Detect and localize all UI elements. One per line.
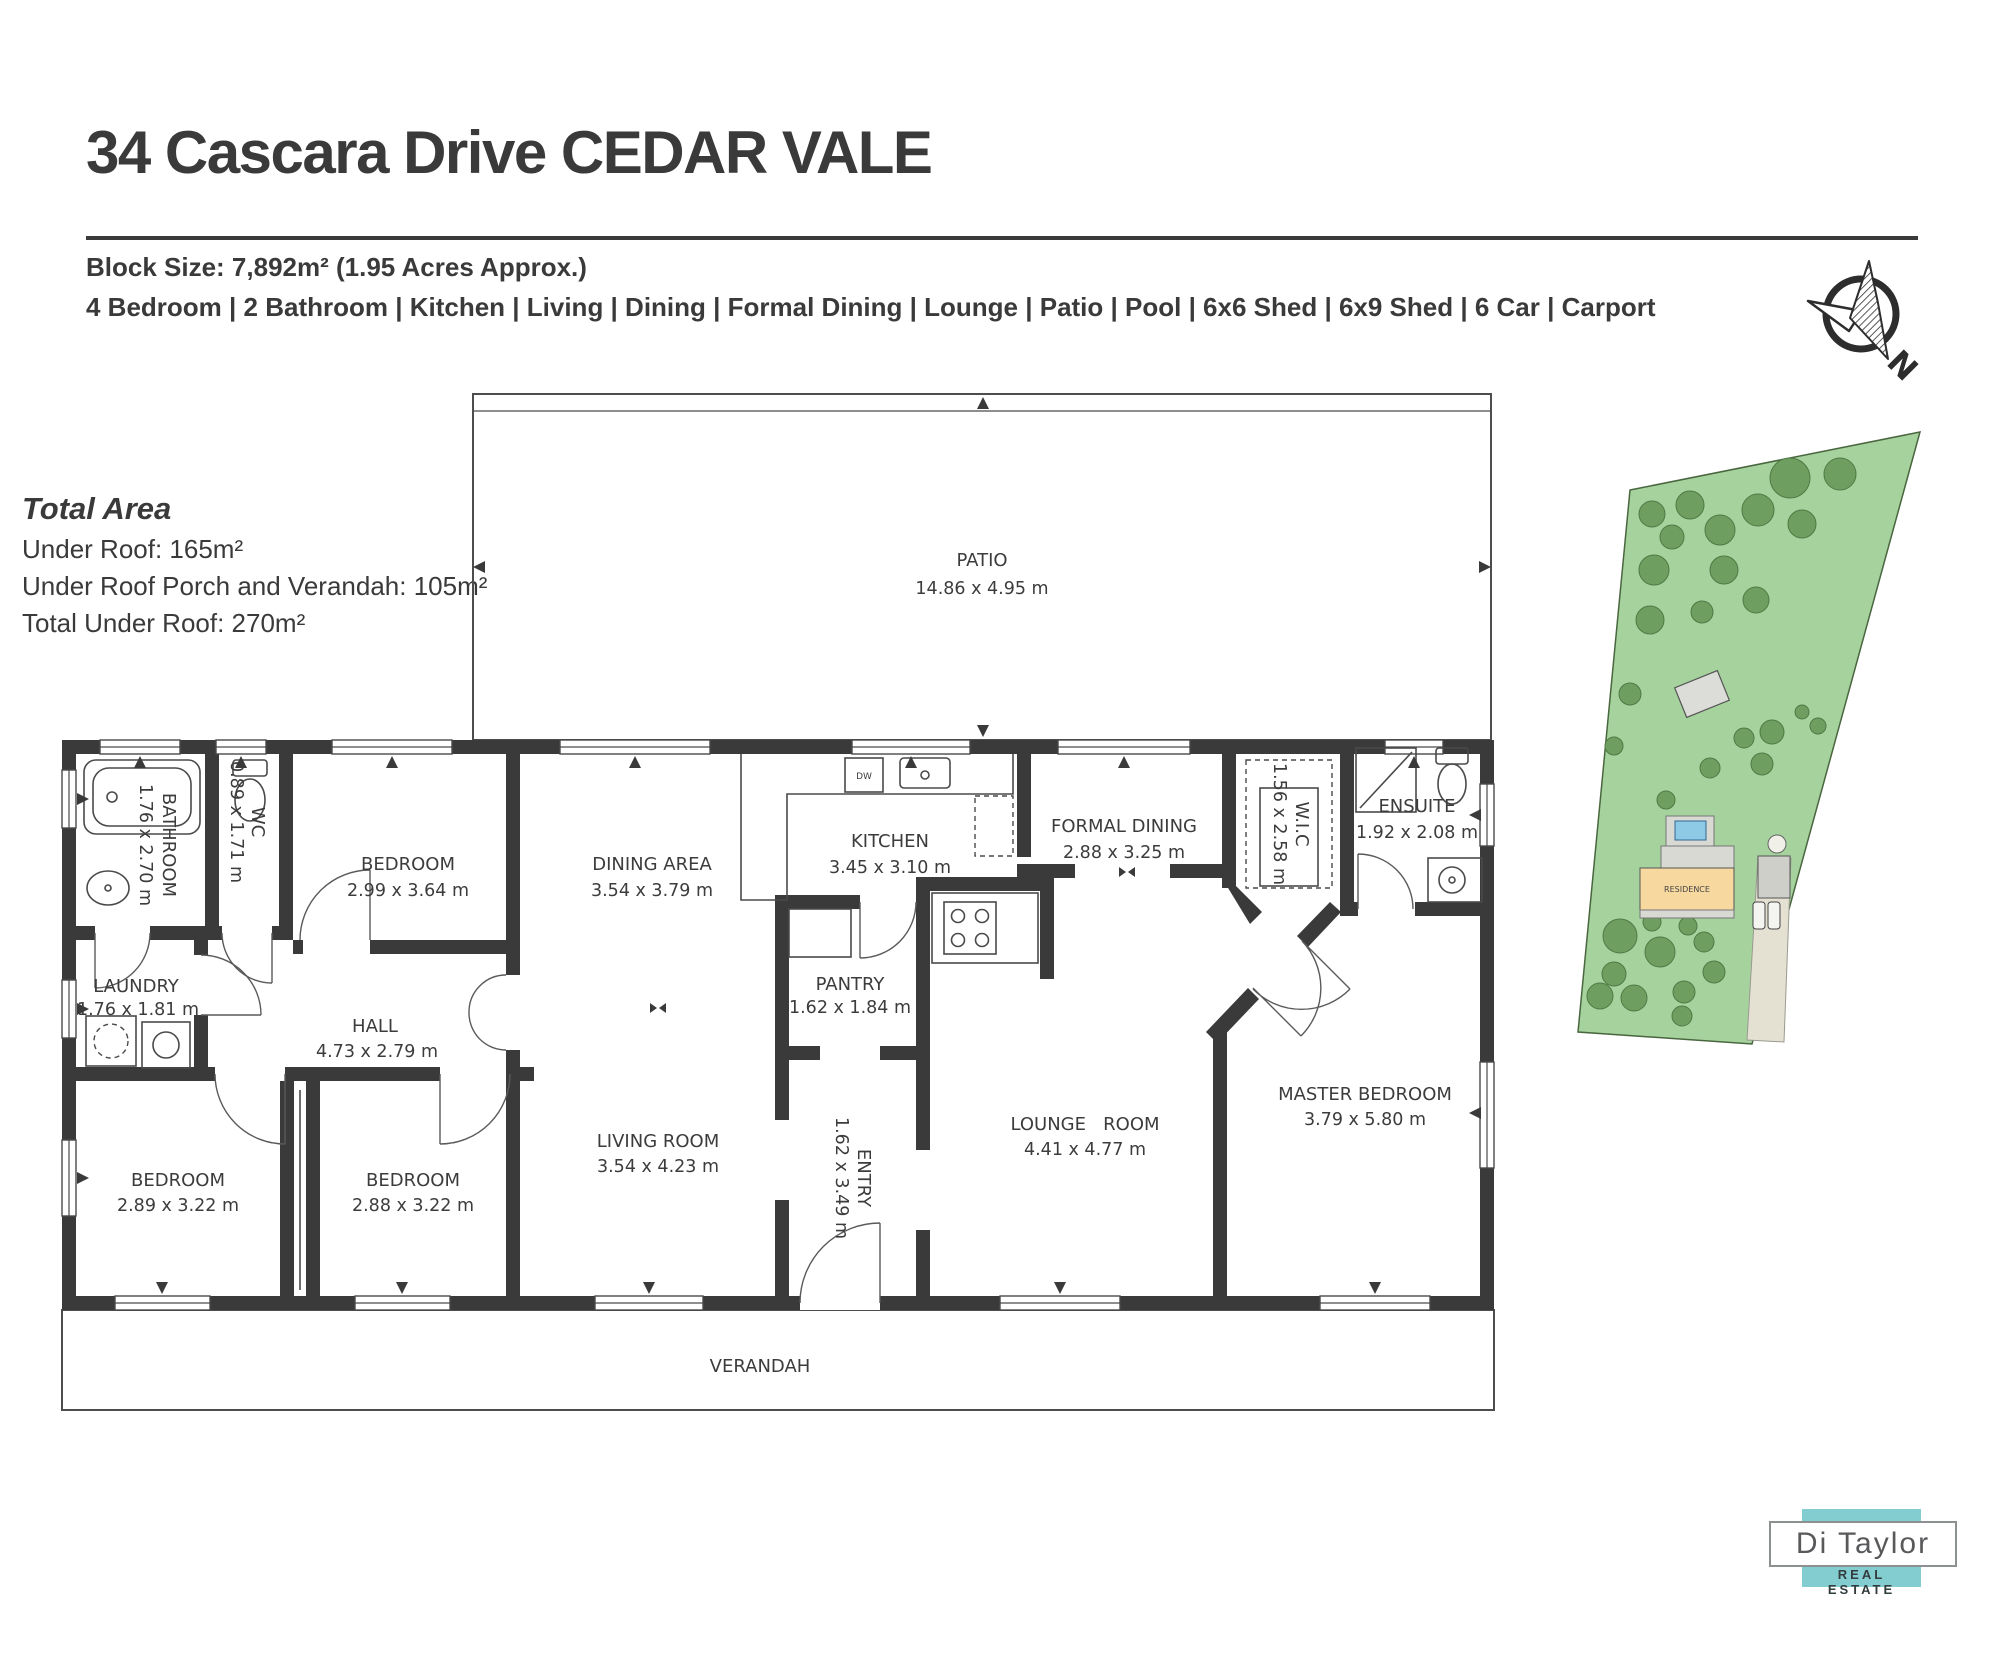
stove-counter <box>932 893 1038 963</box>
room-dims-entry: 1.62 x 3.49 m <box>831 1117 851 1239</box>
room-label-bedroom2: BEDROOM <box>131 1170 225 1191</box>
car-1 <box>1753 902 1765 929</box>
room-label-bathroom: BATHROOM <box>158 793 179 897</box>
room-dims-pantry: 1.62 x 1.84 m <box>789 998 911 1018</box>
dishwasher-label: DW <box>856 772 872 782</box>
room-dims-bedroom2: 2.89 x 3.22 m <box>117 1196 239 1216</box>
room-dims-bathroom: 1.76 x 2.70 m <box>135 784 155 906</box>
room-dims-bedroom3: 2.88 x 3.22 m <box>352 1196 474 1216</box>
room-label-master-bedroom: MASTER BEDROOM <box>1278 1084 1452 1105</box>
room-label-ensuite: ENSUITE <box>1378 796 1455 817</box>
room-dims-wc: 0.89 x 1.71 m <box>226 761 246 883</box>
logo-brand: Di Taylor <box>1769 1521 1957 1567</box>
laundry-tub <box>142 1022 190 1068</box>
room-dims-bedroom1: 2.99 x 3.64 m <box>347 881 469 901</box>
site-plan: RESIDENCE <box>1578 432 1920 1044</box>
room-label-lounge: LOUNGE ROOM <box>1010 1114 1159 1135</box>
front-door-gap <box>800 1296 880 1310</box>
room-dims-laundry: 1.76 x 1.81 m <box>77 1000 199 1020</box>
room-label-pantry: PANTRY <box>816 974 886 995</box>
agency-logo: Di Taylor REAL ESTATE <box>1769 1509 1959 1591</box>
floor-plan-canvas: PATIO 14.86 x 4.95 m BATHROOM 1.76 x 2.7… <box>0 0 2000 1677</box>
compass-north-icon: N <box>1808 261 1925 388</box>
room-dims-wic: 1.56 x 2.58 m <box>1269 763 1289 885</box>
car-2 <box>1768 902 1780 929</box>
room-dims-hall: 4.73 x 2.79 m <box>316 1042 438 1062</box>
pool <box>1675 821 1706 840</box>
residence-label: RESIDENCE <box>1664 885 1710 894</box>
room-dims-living: 3.54 x 4.23 m <box>597 1157 719 1177</box>
room-label-bedroom1: BEDROOM <box>361 854 455 875</box>
room-dims-patio: 14.86 x 4.95 m <box>915 579 1048 599</box>
kitchen-sink <box>900 758 950 788</box>
room-label-laundry: LAUNDRY <box>93 976 180 997</box>
room-label-kitchen: KITCHEN <box>851 831 929 852</box>
room-label-wic: W.I.C <box>1291 801 1312 846</box>
fridge-space <box>975 796 1013 856</box>
room-label-living: LIVING ROOM <box>597 1131 719 1152</box>
room-dims-dining: 3.54 x 3.79 m <box>591 881 713 901</box>
room-dims-formal-dining: 2.88 x 3.25 m <box>1063 843 1185 863</box>
room-dims-lounge: 4.41 x 4.77 m <box>1024 1140 1146 1160</box>
room-label-formal-dining: FORMAL DINING <box>1051 816 1197 837</box>
room-label-bedroom3: BEDROOM <box>366 1170 460 1191</box>
room-label-entry: ENTRY <box>853 1149 874 1208</box>
water-tank <box>1768 835 1786 853</box>
pantry-closet <box>789 909 851 957</box>
room-dims-kitchen: 3.45 x 3.10 m <box>829 858 951 878</box>
room-label-dining: DINING AREA <box>592 854 712 875</box>
carport <box>1758 856 1790 898</box>
room-label-patio: PATIO <box>956 550 1007 571</box>
room-label-wc: WC <box>247 807 268 837</box>
logo-tagline: REAL ESTATE <box>1802 1567 1921 1597</box>
bathroom-basin <box>87 871 129 905</box>
room-label-hall: HALL <box>352 1016 398 1037</box>
room-label-verandah: VERANDAH <box>710 1356 811 1377</box>
room-dims-master-bedroom: 3.79 x 5.80 m <box>1304 1110 1426 1130</box>
room-dims-ensuite: 1.92 x 2.08 m <box>1356 823 1478 843</box>
stove <box>944 902 996 954</box>
